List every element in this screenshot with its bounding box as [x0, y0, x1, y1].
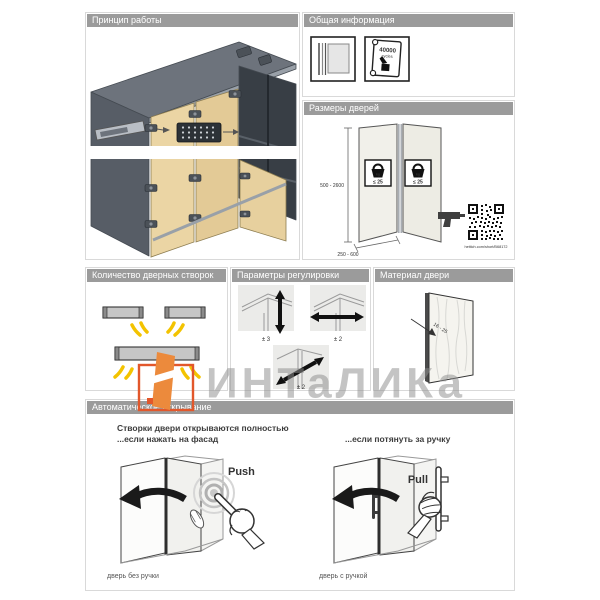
adjustment-illustration: ± 3 ± 2 — [232, 283, 369, 389]
caption-door-with-handle: дверь с ручкой — [319, 573, 367, 580]
motion-marks-top — [132, 323, 183, 335]
door-leaf-b — [167, 458, 201, 555]
vertical-adjust-label: ± 3 — [262, 337, 271, 343]
qr-code — [468, 204, 504, 240]
panel-auto-opening: Автоматическое открывание Створки двери … — [85, 399, 515, 591]
panel-door-sizes-body: 500 - 2600 250 - 600 kg ≤ 25 — [304, 116, 513, 258]
cycles-certificate-icon: 40000 cycles — [365, 37, 409, 81]
door-gap — [398, 124, 400, 233]
panel-auto-opening-body: Створки двери открываются полностью ...е… — [87, 415, 513, 589]
pull-illustration: Pull — [312, 447, 513, 565]
panel-door-sizes: Размеры дверей 500 - 2600 250 - 60 — [302, 100, 515, 260]
two-leaf-plan — [103, 307, 205, 318]
door-leaf-a — [334, 458, 378, 563]
diagonal-adjust-label: ± 2 — [297, 385, 306, 389]
weight-badge-right: kg ≤ 25 — [405, 160, 431, 186]
door-material-illustration: 16 - 25 — [375, 283, 513, 389]
panel-principle: Принцип работы — [85, 12, 300, 260]
cabinet-left-wall — [91, 92, 149, 256]
horizontal-adjust-label: ± 2 — [334, 337, 343, 343]
push-illustration: Push — [99, 447, 304, 565]
horizontal-adjust-diagram: ± 2 — [310, 285, 366, 343]
door-leaf-a — [121, 458, 165, 563]
caption-door-no-handle: дверь без ручки — [107, 573, 159, 580]
auto-opening-heading-line1: Створки двери открываются полностью — [117, 423, 289, 433]
page-split-band — [87, 146, 298, 159]
general-info-icons: 40000 cycles — [309, 35, 419, 87]
height-range-label: 500 - 2600 — [320, 183, 344, 189]
pull-label: Pull — [408, 474, 428, 486]
panel-leaf-count-body — [87, 283, 226, 389]
panel-adjustment-title: Параметры регулировки — [232, 269, 369, 282]
door-leaf-b — [380, 458, 414, 555]
push-label: Push — [228, 466, 255, 478]
one-leaf-plan — [115, 347, 199, 360]
door-sizes-illustration: 500 - 2600 250 - 600 kg ≤ 25 — [304, 116, 513, 258]
push-condition: ...если нажать на фасад — [117, 434, 218, 444]
panel-general-info-title: Общая информация — [304, 14, 513, 27]
panel-door-sizes-title: Размеры дверей — [304, 102, 513, 115]
catalog-icon — [311, 37, 355, 81]
pull-condition: ...если потянуть за ручку — [345, 434, 450, 444]
drill-icon — [438, 212, 465, 227]
width-range-label: 250 - 600 — [337, 252, 358, 258]
panel-general-info: Общая информация 40000 — [302, 12, 515, 97]
svg-text:kg: kg — [416, 173, 420, 177]
catalog-page: Принцип работы — [0, 0, 600, 600]
hettich-link: hettich.com/short/B68172 — [464, 245, 507, 249]
panel-adjustment-body: ± 3 ± 2 — [232, 283, 369, 389]
weight-limit: ≤ 25 — [373, 180, 383, 186]
diagonal-adjust-diagram: ± 2 — [273, 345, 329, 389]
panel-door-material: Материал двери 16 - 25 — [373, 267, 515, 391]
panel-door-material-body: 16 - 25 — [375, 283, 513, 389]
panel-principle-title: Принцип работы — [87, 14, 298, 27]
panel-leaf-count: Количество дверных створок — [85, 267, 228, 391]
weight-unit: kg — [376, 173, 380, 177]
cabinet-illustration — [87, 28, 298, 258]
vertical-adjust-diagram: ± 3 — [238, 285, 294, 343]
height-dimension — [344, 128, 352, 242]
wrist — [242, 529, 264, 549]
leaf-count-illustration — [87, 283, 226, 389]
panel-door-material-title: Материал двери — [375, 269, 513, 282]
motion-marks-bottom — [115, 367, 199, 378]
panel-leaf-count-title: Количество дверных створок — [87, 269, 226, 282]
panel-auto-opening-title: Автоматическое открывание — [87, 401, 513, 414]
panel-principle-body — [87, 28, 298, 258]
door-edge — [425, 293, 429, 383]
panel-adjustment: Параметры регулировки ± 3 — [230, 267, 371, 391]
svg-text:≤ 25: ≤ 25 — [413, 180, 423, 186]
panel-general-info-body: 40000 cycles — [304, 28, 513, 95]
weight-badge-left: kg ≤ 25 — [365, 160, 391, 186]
